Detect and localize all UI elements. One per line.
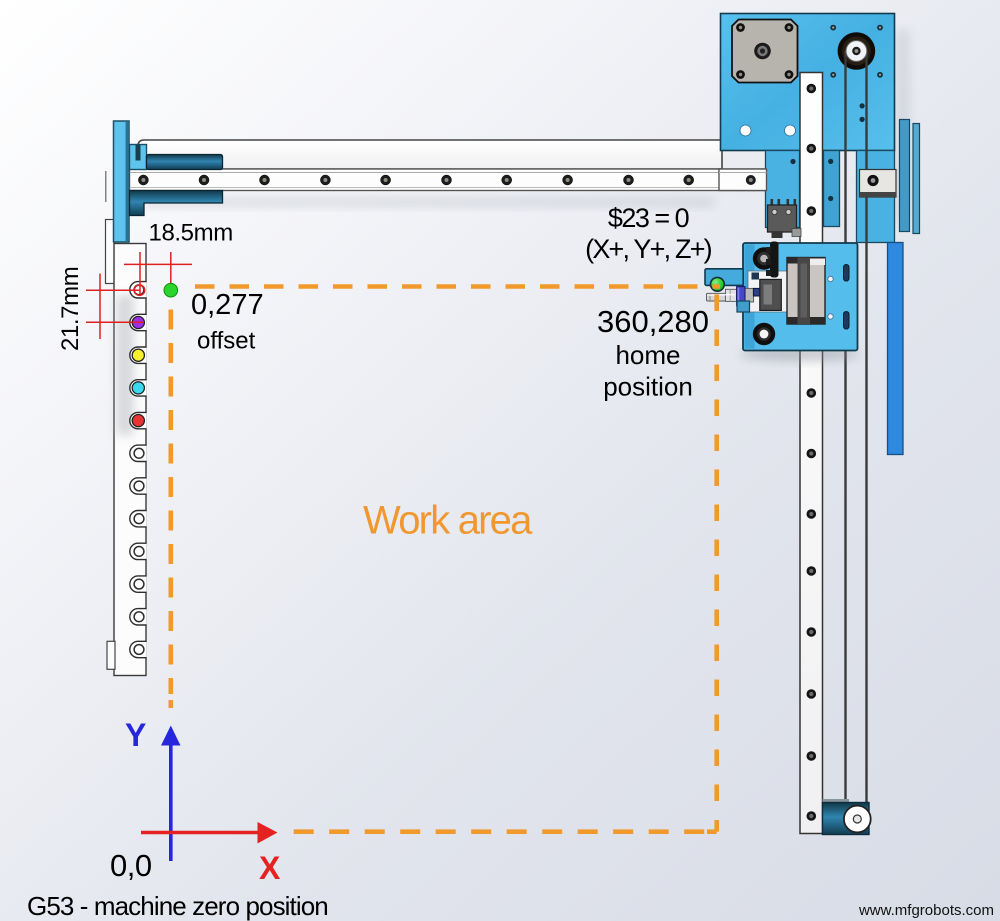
svg-text:Y: Y [125, 717, 146, 753]
svg-text:offset: offset [197, 328, 256, 355]
svg-text:Work area: Work area [363, 499, 533, 543]
svg-text:G53 - machine zero position: G53 - machine zero position [27, 891, 328, 921]
svg-text:position: position [603, 372, 693, 402]
svg-text:(X+, Y+, Z+): (X+, Y+, Z+) [585, 234, 712, 264]
svg-text:home: home [615, 340, 680, 370]
svg-text:360,280: 360,280 [597, 304, 709, 339]
svg-text:0,277: 0,277 [191, 289, 264, 321]
svg-text:$23 = 0: $23 = 0 [608, 203, 689, 233]
svg-text:www.mfgrobots.com: www.mfgrobots.com [858, 902, 994, 919]
svg-text:X: X [259, 850, 281, 886]
svg-text:0,0: 0,0 [110, 848, 152, 883]
svg-text:21.7mm: 21.7mm [57, 267, 84, 351]
svg-text:18.5mm: 18.5mm [149, 220, 233, 247]
